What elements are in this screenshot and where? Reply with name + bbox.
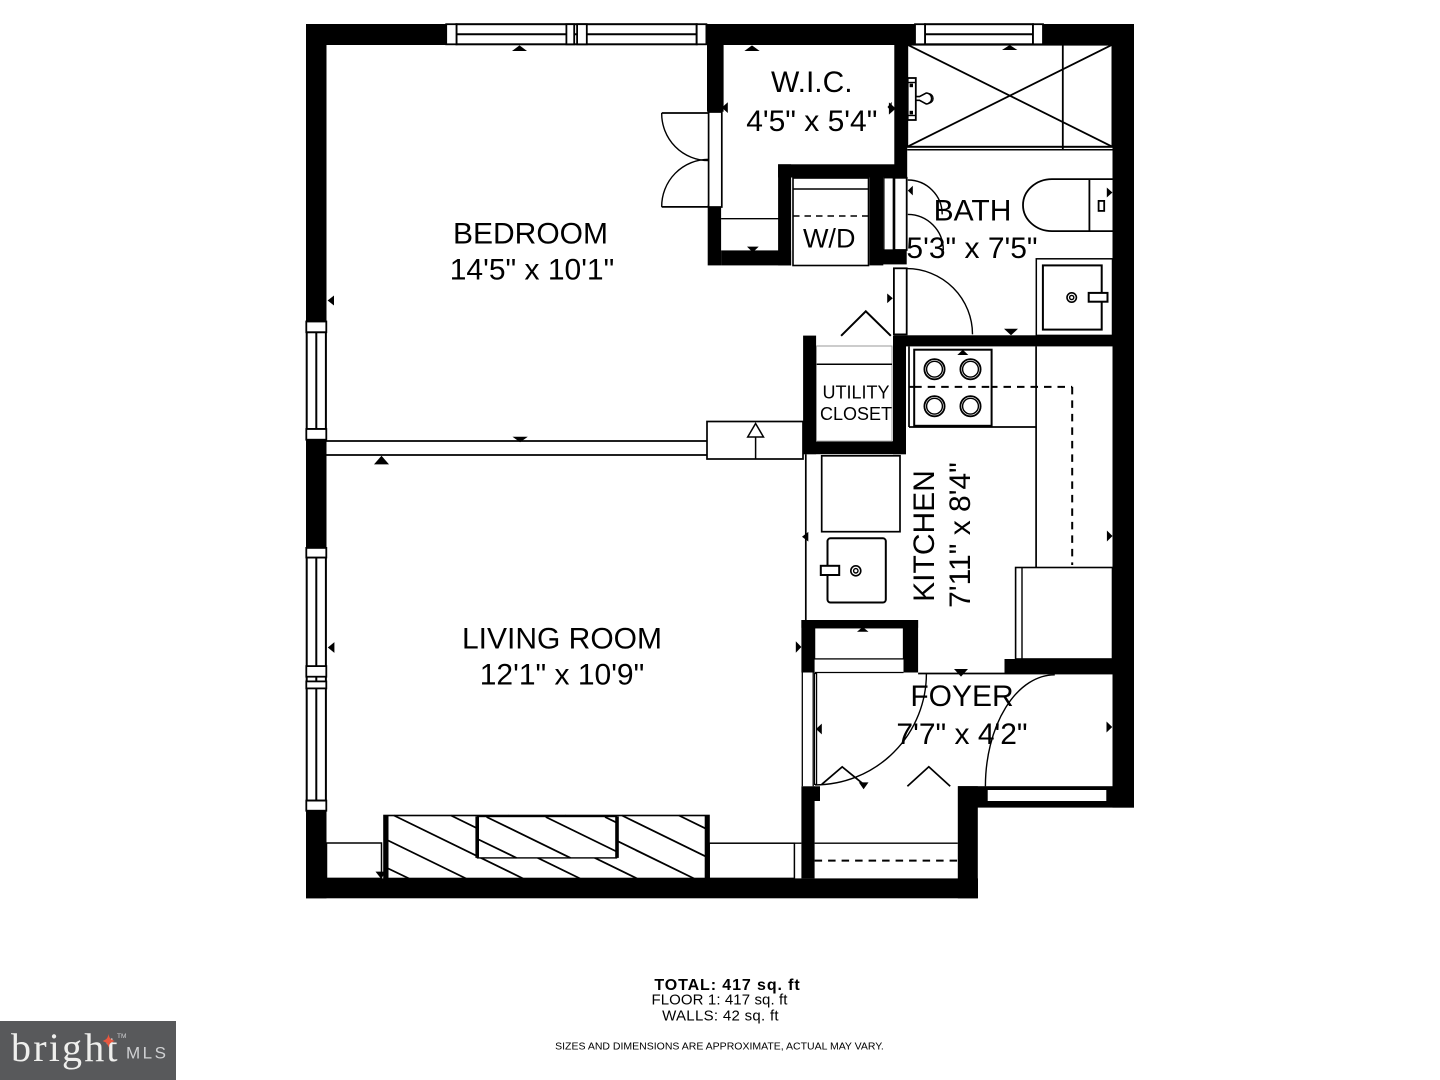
svg-text:CLOSET: CLOSET: [820, 404, 892, 424]
svg-text:5'3" x 7'5": 5'3" x 7'5": [906, 232, 1037, 265]
svg-text:BATH: BATH: [934, 195, 1012, 228]
svg-text:MLS: MLS: [126, 1044, 168, 1063]
svg-text:12'1" x 10'9": 12'1" x 10'9": [480, 659, 645, 692]
svg-text:LIVING ROOM: LIVING ROOM: [462, 623, 662, 656]
svg-text:WALLS: 42 sq. ft: WALLS: 42 sq. ft: [662, 1008, 779, 1025]
svg-text:TM: TM: [117, 1033, 126, 1040]
svg-text:14'5" x 10'1": 14'5" x 10'1": [450, 254, 615, 287]
svg-text:W/D: W/D: [803, 224, 855, 254]
svg-text:7'7" x 4'2": 7'7" x 4'2": [896, 718, 1027, 751]
svg-text:4'5" x 5'4": 4'5" x 5'4": [746, 105, 877, 138]
svg-text:W.I.C.: W.I.C.: [771, 66, 853, 99]
svg-text:bright: bright: [11, 1025, 120, 1070]
svg-text:BEDROOM: BEDROOM: [453, 218, 608, 251]
svg-text:FLOOR 1: 417 sq. ft: FLOOR 1: 417 sq. ft: [651, 992, 788, 1009]
svg-text:SIZES AND DIMENSIONS ARE APPRO: SIZES AND DIMENSIONS ARE APPROXIMATE, AC…: [555, 1041, 884, 1053]
svg-text:UTILITY: UTILITY: [822, 383, 889, 403]
svg-text:FOYER: FOYER: [910, 680, 1013, 713]
svg-text:KITCHEN: KITCHEN: [908, 470, 941, 602]
svg-text:7'11" x 8'4": 7'11" x 8'4": [944, 462, 977, 608]
